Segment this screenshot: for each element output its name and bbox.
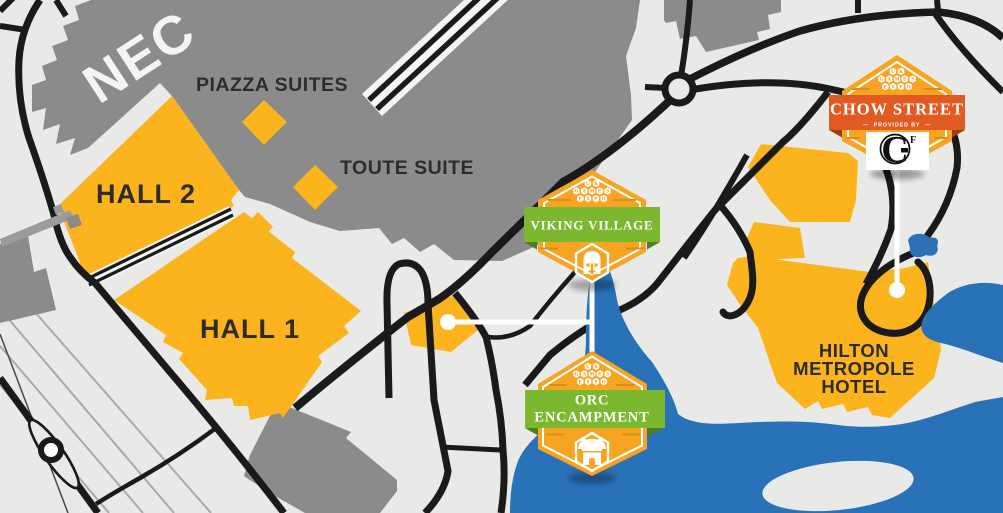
svg-text:ORC: ORC: [575, 393, 610, 409]
svg-text:HOTEL: HOTEL: [821, 376, 886, 397]
svg-text:VIKING VILLAGE: VIKING VILLAGE: [531, 219, 654, 233]
svg-text:F: F: [910, 135, 916, 146]
svg-text:HALL 2: HALL 2: [96, 179, 196, 209]
svg-text:PIAZZA SUITES: PIAZZA SUITES: [196, 74, 348, 96]
svg-text:— PROVIDED BY —: — PROVIDED BY —: [863, 123, 932, 129]
svg-text:CHOW STREET: CHOW STREET: [830, 100, 964, 119]
svg-text:HALL 1: HALL 1: [200, 314, 300, 344]
svg-text:ENCAMPMENT: ENCAMPMENT: [534, 410, 649, 426]
svg-text:TOUTE SUITE: TOUTE SUITE: [340, 157, 474, 179]
